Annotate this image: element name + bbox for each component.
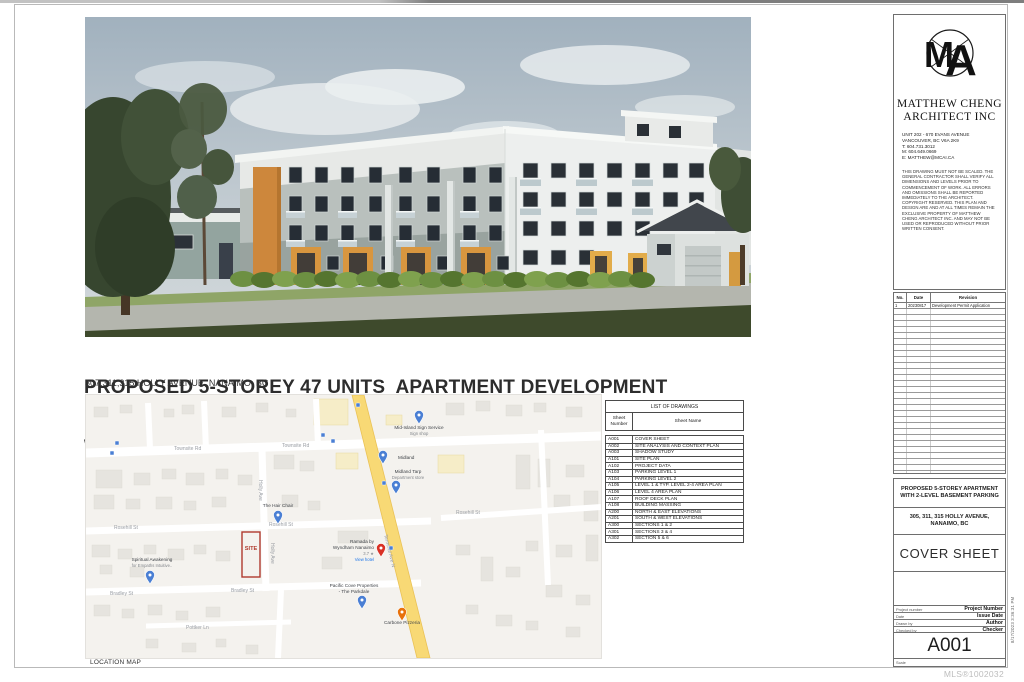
title-block: M A MATTHEW CHENG ARCHITECT INC UNIT 202…	[893, 14, 1006, 667]
drawing-list-title: LIST OF DRAWINGS	[605, 400, 744, 413]
plot-timestamp: 8/17/2023 3:36:31 PM	[1010, 597, 1015, 643]
sheet-number: A105	[606, 483, 633, 489]
drawing-list-col-number: Sheet Number	[606, 413, 633, 430]
street-label-rosehill-3: Rosehill St	[456, 510, 481, 516]
sheet-name: PROJECT DATA	[633, 463, 743, 469]
drawing-list-table: LIST OF DRAWINGS Sheet Number Sheet Name…	[605, 400, 744, 543]
poi-pacific-1: Pacific Cove Properties	[330, 583, 379, 588]
poi-carbone: Carbone Pizzeria	[384, 620, 420, 625]
sheet-number: A101	[606, 457, 633, 463]
map-svg: Townsite Rd Townsite Rd Rosehill St Rose…	[86, 395, 601, 658]
sheet-number: A107	[606, 496, 633, 502]
revision-table: No. Date Revision 1 20230817 Development…	[893, 292, 1006, 474]
sheet-name: PARKING LEVEL 1	[633, 470, 743, 476]
location-map-caption: LOCATION MAP	[90, 659, 141, 666]
sheet-number: A102	[606, 463, 633, 469]
sheet-title: COVER SHEET	[893, 534, 1006, 572]
table-row: A302SECTION 5 & 6	[606, 535, 743, 542]
sheet-number-box: A001	[893, 632, 1006, 659]
titleblock-empty-box	[893, 571, 1006, 606]
poi-hair-chair: The Hair Chair	[263, 503, 294, 508]
sheet-number: A106	[606, 490, 633, 496]
sheet-name: SOUTH & WEST ELEVATIONS	[633, 516, 743, 522]
poi-midland-tarp-sub: Department store	[392, 475, 425, 480]
firm-box: M A MATTHEW CHENG ARCHITECT INC UNIT 202…	[893, 14, 1006, 290]
sheet-number: A104	[606, 477, 633, 483]
field-label: Drawn by	[896, 621, 912, 626]
table-row: A105LEVEL 1 & TYP. LEVEL 2-4 AREA PLAN	[606, 482, 743, 489]
sheet-name: ROOF DECK PLAN	[633, 496, 743, 502]
sheet-name: SECTIONS 3 & 4	[633, 529, 743, 535]
sheet-number: A200	[606, 510, 633, 516]
field-label: Date	[896, 614, 904, 619]
poi-pacific-2: - The Parkdale	[339, 589, 370, 594]
table-row: A103PARKING LEVEL 1	[606, 469, 743, 476]
revision-empty-rows	[894, 309, 1005, 473]
field-value: Issue Date	[977, 613, 1003, 619]
field-row: Drawn by Author	[894, 620, 1005, 627]
poi-ramada-1: Ramada by	[350, 539, 375, 544]
firm-contact: UNIT 202 - 670 EVANS AVENUE VANCOUVER, B…	[902, 132, 997, 161]
sheet-name: PARKING LEVEL 2	[633, 477, 743, 483]
window-top-bar	[0, 0, 1024, 3]
scale-box: Scale	[893, 658, 1006, 667]
table-row: A002SITE ANALYSIS AND CONTEXT PLAN	[606, 443, 743, 450]
table-row: A102PROJECT DATA	[606, 462, 743, 469]
poi-ramada-rating: 3.7 ★	[363, 551, 374, 556]
firm-name-line2: ARCHITECT INC	[894, 111, 1005, 124]
table-row: A201SOUTH & WEST ELEVATIONS	[606, 515, 743, 522]
table-row: A104PARKING LEVEL 2	[606, 476, 743, 483]
location-map[interactable]: Townsite Rd Townsite Rd Rosehill St Rose…	[85, 394, 602, 659]
street-label-holly-1: Holly Ave	[257, 480, 263, 501]
poi-spiritual-2: for Empaths Intuitive..	[132, 563, 173, 568]
drawing-list-col-name: Sheet Name	[633, 413, 743, 430]
table-row: A106LEVEL 4 AREA PLAN	[606, 489, 743, 496]
firm-name-line1: MATTHEW CHENG	[894, 98, 1005, 111]
sheet-name: LEVEL 1 & TYP. LEVEL 2-4 AREA PLAN	[633, 483, 743, 489]
firm-logo-icon: M A	[918, 23, 982, 93]
table-row: A301SECTIONS 3 & 4	[606, 528, 743, 535]
titleblock-fields: Project number Project Number Date Issue…	[893, 605, 1006, 633]
revision-header: No. Date Revision	[894, 293, 1005, 303]
poi-ramada-2: Wyndham Nanaimo	[333, 545, 375, 550]
disclaimer-text: THIS DRAWING MUST NOT BE SCALED. THE GEN…	[902, 169, 997, 231]
titleblock-project-address: 305, 311, 315 HOLLY AVENUE, NANAIMO, BC	[893, 507, 1006, 535]
street-label-bradley-2: Bradley St	[231, 588, 255, 594]
street-label-rosehill-1: Rosehill St	[114, 525, 139, 531]
poi-ramada-link[interactable]: View hotel	[355, 557, 374, 562]
table-row: A001COVER SHEET	[606, 436, 743, 443]
sheet-number: A301	[606, 529, 633, 535]
table-row: A003SHADOW STUDY	[606, 449, 743, 456]
sheet-number: A103	[606, 470, 633, 476]
orange-accent-column	[253, 167, 281, 285]
drawing-list-header: Sheet Number Sheet Name	[605, 413, 744, 431]
sheet-number: A001	[606, 436, 633, 443]
svg-text:A: A	[945, 36, 977, 85]
sheet-name: SITE ANALYSIS AND CONTEXT PLAN	[633, 444, 743, 450]
sheet-number: A300	[606, 523, 633, 529]
sheet-name: SECTION 5 & 6	[633, 536, 743, 542]
revision-col-revision: Revision	[931, 293, 1005, 303]
sheet-number: A002	[606, 444, 633, 450]
field-value: Project Number	[964, 606, 1003, 612]
sheet-name: SHADOW STUDY	[633, 450, 743, 456]
mls-watermark: MLS®1002032	[944, 669, 1004, 679]
field-row: Project number Project Number	[894, 606, 1005, 613]
revision-col-no: No.	[894, 293, 907, 303]
poi-sign-service-sub: Sign shop	[410, 431, 429, 436]
revision-col-date: Date	[907, 293, 931, 303]
table-row: A300SECTIONS 1 & 2	[606, 522, 743, 529]
poi-sign-service: Mid-Island Sign Service	[394, 425, 444, 430]
table-row: A200NORTH & EAST ELEVATIONS	[606, 509, 743, 516]
sheet-name: NORTH & EAST ELEVATIONS	[633, 510, 743, 516]
contact-line: E: MATTHEW@MCAI.CA	[902, 155, 997, 161]
site-label: SITE	[245, 546, 258, 552]
street-label-townsite-1: Townsite Rd	[174, 446, 201, 452]
drawing-list-rows: A001COVER SHEET A002SITE ANALYSIS AND CO…	[605, 435, 744, 543]
table-row: A108BUILDING MASSING	[606, 502, 743, 509]
sheet-name: BUILDING MASSING	[633, 503, 743, 509]
rendering-svg	[85, 17, 751, 337]
street-label-bradley-1: Bradley St	[110, 591, 134, 597]
building-rendering	[85, 17, 751, 337]
poi-midland-tarp: Midland Tarp	[395, 469, 422, 474]
titleblock-project-name: PROPOSED 5-STOREY APARTMENT WITH 2-LEVEL…	[893, 478, 1006, 508]
poi-midland: Midland	[398, 455, 415, 460]
field-row: Date Issue Date	[894, 613, 1005, 620]
architectural-cover-sheet: PROPOSED 5-STOREY 47 UNITS APARTMENT DEV…	[0, 0, 1024, 682]
sheet-number: A201	[606, 516, 633, 522]
sheet-name: SECTIONS 1 & 2	[633, 523, 743, 529]
field-label: Project number	[896, 607, 922, 612]
poi-spiritual-1: Spiritual Awakening	[132, 557, 173, 562]
table-row: A101SITE PLAN	[606, 456, 743, 463]
sheet-name: SITE PLAN	[633, 457, 743, 463]
street-label-townsite-2: Townsite Rd	[282, 443, 309, 449]
sheet-number: A003	[606, 450, 633, 456]
sheet-number: A108	[606, 503, 633, 509]
project-address: 307,311,315 HOLLY AVENUE, NANAIMO, BC	[85, 378, 268, 388]
street-label-rosehill-2: Rosehill St	[269, 522, 294, 528]
field-value: Author	[986, 620, 1003, 626]
sheet-name: COVER SHEET	[633, 436, 743, 443]
firm-name: MATTHEW CHENG ARCHITECT INC	[894, 98, 1005, 124]
sheet-name: LEVEL 4 AREA PLAN	[633, 490, 743, 496]
table-row: A107ROOF DECK PLAN	[606, 495, 743, 502]
sheet-number: A302	[606, 536, 633, 542]
street-label-holly-2: Holly Ave	[269, 543, 275, 564]
street-label-pottker: Pottker Ln	[186, 625, 209, 631]
